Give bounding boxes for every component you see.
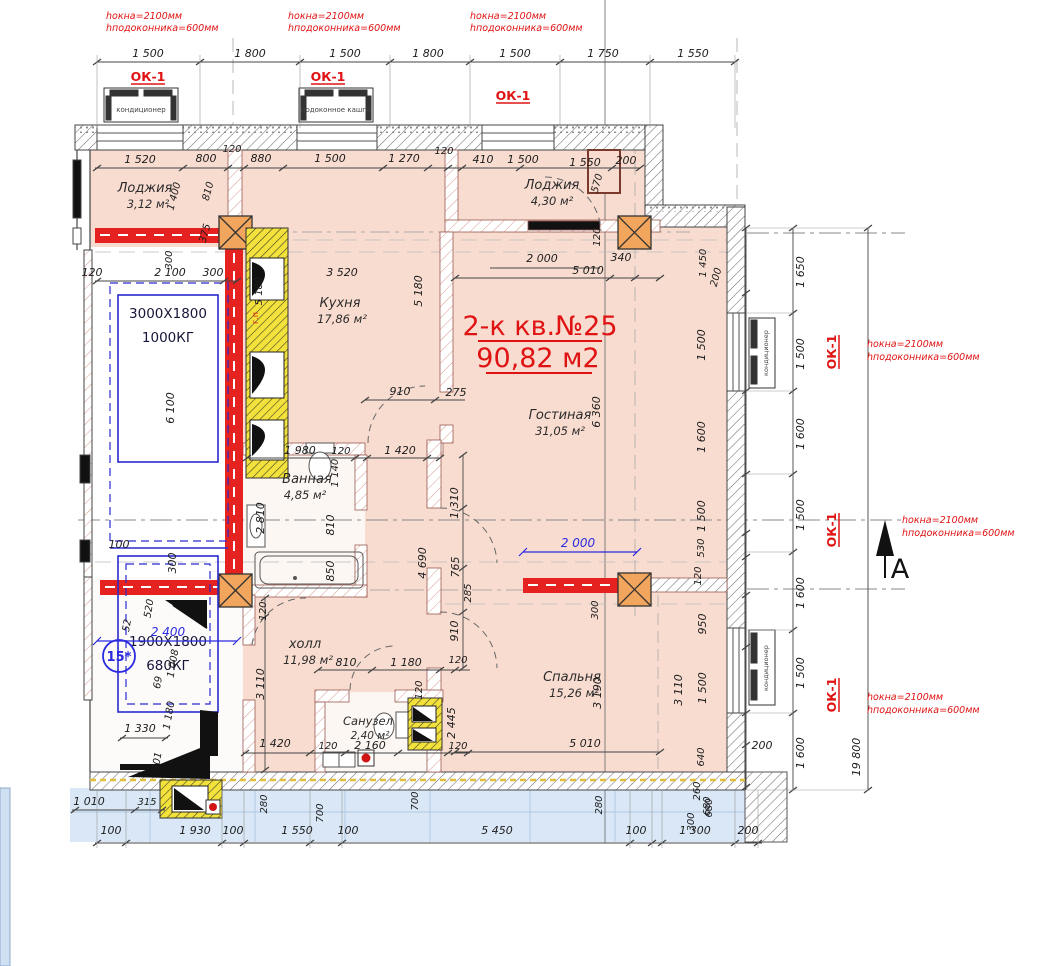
room-name: Лоджия bbox=[117, 181, 173, 196]
dim-label: 530 bbox=[696, 538, 707, 557]
dim-label: 120 bbox=[592, 227, 603, 246]
dim-label: 910 bbox=[448, 621, 461, 642]
dim-label: 1 180 bbox=[390, 656, 422, 669]
dim-label: 120 bbox=[258, 601, 269, 620]
dim-label: 880 bbox=[251, 152, 272, 165]
dim-label: 640 bbox=[696, 747, 707, 766]
dim-label: 1 930 bbox=[179, 824, 211, 837]
column bbox=[618, 216, 651, 249]
elevator-capacity: 1000КГ bbox=[142, 330, 194, 346]
room-area: 17,86 м² bbox=[317, 312, 367, 326]
window-note-line: hподоконника=600мм bbox=[470, 23, 583, 34]
dim-label: 1 800 bbox=[234, 47, 266, 60]
dim-label: 1 420 bbox=[259, 737, 291, 750]
dim-label: 120 bbox=[82, 266, 103, 279]
dim-label: 120 bbox=[434, 146, 453, 157]
dim-label: 1 500 bbox=[794, 499, 807, 531]
dim-label: 69 bbox=[152, 675, 165, 689]
dim-label: 700 bbox=[410, 791, 421, 810]
dim-label: 200 bbox=[738, 824, 759, 837]
dim-label: 910 bbox=[390, 385, 411, 398]
dim-label: 315 bbox=[137, 797, 156, 808]
dim-label: 1 450 bbox=[698, 249, 709, 278]
dim-label: 1 500 bbox=[507, 153, 539, 166]
dim-label: 6 100 bbox=[164, 392, 177, 424]
dim-label: 5 180 bbox=[412, 275, 425, 307]
planter-box: подоконное кашпо bbox=[299, 88, 373, 122]
dim-label: 1 300 bbox=[679, 824, 711, 837]
dim-label: 1 500 bbox=[132, 47, 164, 60]
dim-label: 1 310 bbox=[448, 487, 461, 519]
conditioner-label: кондиционер bbox=[762, 645, 770, 691]
dim-label: 120 bbox=[414, 680, 425, 699]
dim-label: 280 bbox=[594, 795, 605, 814]
room-area: 15,26 м² bbox=[549, 686, 599, 700]
blue-dim-label: 2 000 bbox=[561, 536, 596, 550]
dim-label: 120 bbox=[448, 655, 467, 666]
window-type: ОК-1 bbox=[131, 69, 166, 84]
dim-label: 100 bbox=[223, 824, 244, 837]
window-note-line: hподоконника=600мм bbox=[106, 23, 219, 34]
column bbox=[219, 574, 252, 607]
dim-label: 3 110 bbox=[254, 668, 267, 700]
planter-label: подоконное кашпо bbox=[301, 106, 371, 114]
dim-label: 1 650 bbox=[794, 256, 807, 288]
window-note-line: hокна=2100мм bbox=[106, 11, 182, 22]
window-note-line: hокна=2100мм bbox=[288, 11, 364, 22]
floor-plan-screenshot: 3000X1800 1000КГ 1900X1800 680КГ г.п bbox=[0, 0, 1061, 966]
dim-label: 1 750 bbox=[587, 47, 619, 60]
dim-label: 120 bbox=[693, 566, 704, 585]
room-name: Гостиная bbox=[529, 408, 592, 423]
left-corridor-strip bbox=[0, 788, 10, 966]
blue-dim-label: 2 400 bbox=[151, 625, 186, 639]
dim-label: 2 445 bbox=[445, 707, 458, 739]
room-area: 11,98 м² bbox=[283, 653, 333, 667]
dim-label: 2 000 bbox=[526, 252, 558, 265]
window-note-line: hподоконника=600мм bbox=[288, 23, 401, 34]
apartment-title: 2-к кв.№25 90,82 м2 bbox=[462, 311, 617, 374]
dim-label: 100 bbox=[626, 824, 647, 837]
window-type: ОК-1 bbox=[824, 513, 839, 548]
dim-label: 1 420 bbox=[384, 444, 416, 457]
entry-shaft bbox=[160, 780, 222, 818]
gas-stove-label: г.п bbox=[251, 312, 260, 324]
dim-label: 1 600 bbox=[695, 421, 708, 453]
dim-label: 850 bbox=[324, 561, 337, 582]
dim-label: 100 bbox=[101, 824, 122, 837]
dim-label: 120 bbox=[318, 741, 337, 752]
dim-label: 1 500 bbox=[794, 338, 807, 370]
room-name: Санузел bbox=[343, 714, 394, 728]
dim-label: 700 bbox=[315, 803, 326, 822]
dim-label: 1 520 bbox=[124, 153, 156, 166]
window-note-line: hподоконника=600мм bbox=[867, 705, 980, 716]
dim-label: 1 010 bbox=[73, 795, 105, 808]
dim-label: 1 600 bbox=[794, 737, 807, 769]
dim-label: 300 bbox=[203, 266, 224, 279]
window-type: ОК-1 bbox=[824, 678, 839, 713]
dim-label: 1 330 bbox=[124, 722, 156, 735]
window-note-line: hподоконника=600мм bbox=[902, 528, 1015, 539]
dim-label: 680 bbox=[704, 798, 715, 817]
dim-label: 340 bbox=[611, 251, 632, 264]
dim-label: 1 600 bbox=[794, 577, 807, 609]
dim-label: 410 bbox=[473, 153, 494, 166]
window-note-line: hокна=2100мм bbox=[867, 692, 943, 703]
apartment-title-line1: 2-к кв.№25 bbox=[462, 311, 617, 342]
dim-label: 5 450 bbox=[481, 824, 513, 837]
dim-label: 1 550 bbox=[677, 47, 709, 60]
dim-label: 6 360 bbox=[590, 396, 603, 428]
window-type: ОК-1 bbox=[824, 335, 839, 370]
room-name: Ванная bbox=[282, 472, 332, 487]
dim-label: 1 500 bbox=[329, 47, 361, 60]
dim-label: 810 bbox=[324, 515, 337, 536]
dim-label: 950 bbox=[696, 614, 709, 635]
conditioner-box-right-1: кондиционер bbox=[749, 318, 775, 388]
conditioner-box-right-2: кондиционер bbox=[749, 630, 775, 705]
dim-label: 2 810 bbox=[254, 502, 267, 534]
window-note-line: hокна=2100мм bbox=[470, 11, 546, 22]
room-area: 2,40 м² bbox=[351, 730, 391, 742]
dim-label: 1 500 bbox=[696, 672, 709, 704]
dim-label: 1 550 bbox=[281, 824, 313, 837]
conditioner-label: кондиционер bbox=[762, 330, 770, 376]
floor-plan-drawing: 3000X1800 1000КГ 1900X1800 680КГ г.п bbox=[0, 0, 1061, 966]
dim-label: 300 bbox=[590, 600, 601, 619]
dim-label: 100 bbox=[109, 538, 130, 551]
apartment-title-line2: 90,82 м2 bbox=[476, 343, 599, 374]
loggia2-window bbox=[528, 221, 600, 230]
conditioner-label: кондиционер bbox=[116, 106, 166, 114]
dim-label: 5 180 bbox=[254, 277, 265, 306]
dim-label: 280 bbox=[259, 794, 270, 813]
dim-label: 120 bbox=[331, 446, 350, 457]
dim-label: 1 980 bbox=[284, 444, 316, 457]
dim-label: 285 bbox=[463, 583, 474, 602]
window-type: ОК-1 bbox=[311, 69, 346, 84]
dim-label: 3 520 bbox=[326, 266, 358, 279]
column bbox=[618, 573, 651, 606]
dim-label: 1 550 bbox=[569, 156, 601, 169]
room-area: 4,30 м² bbox=[531, 194, 574, 208]
room-name: холл bbox=[288, 637, 321, 652]
room-name: Кухня bbox=[320, 296, 361, 311]
elevator-size: 3000X1800 bbox=[129, 306, 207, 322]
conditioner-box: кондиционер bbox=[104, 88, 178, 122]
dim-label: 1 500 bbox=[314, 152, 346, 165]
dim-label: 800 bbox=[196, 152, 217, 165]
dim-label: 1 500 bbox=[695, 500, 708, 532]
dim-label: 5 010 bbox=[569, 737, 601, 750]
dim-label: 1 500 bbox=[499, 47, 531, 60]
dim-label: 2 100 bbox=[154, 266, 186, 279]
dim-label: 100 bbox=[338, 824, 359, 837]
dim-label: 1 500 bbox=[695, 329, 708, 361]
dim-label: 1 500 bbox=[794, 657, 807, 689]
dim-label: 4 690 bbox=[416, 547, 429, 579]
dim-label: 52 bbox=[121, 618, 134, 632]
window-note-line: hподоконника=600мм bbox=[867, 352, 980, 363]
room-area: 31,05 м² bbox=[535, 424, 585, 438]
window-note-line: hокна=2100мм bbox=[867, 339, 943, 350]
room-name: Лоджия bbox=[524, 178, 580, 193]
window-type: ОК-1 bbox=[496, 88, 531, 103]
axis-marker-label: 15* bbox=[107, 650, 132, 665]
dim-label: 1 270 bbox=[388, 152, 420, 165]
window-note-line: hокна=2100мм bbox=[902, 515, 978, 526]
dim-label-overall: 19 800 bbox=[850, 738, 863, 777]
kitchen-counter: г.п bbox=[246, 228, 288, 478]
section-marker-label: A bbox=[891, 554, 910, 585]
dim-label: 810 bbox=[336, 656, 357, 669]
dim-label: 200 bbox=[752, 739, 773, 752]
room-name: Спальня bbox=[543, 670, 601, 685]
dim-label: 120 bbox=[448, 741, 467, 752]
dim-label: 275 bbox=[446, 386, 467, 399]
dim-label: 5 010 bbox=[572, 264, 604, 277]
top-windows bbox=[97, 125, 554, 150]
dim-label: 1 600 bbox=[794, 418, 807, 450]
dim-label: 200 bbox=[616, 154, 637, 167]
dim-label: 300 bbox=[166, 553, 179, 574]
room-area: 4,85 м² bbox=[284, 488, 327, 502]
dim-label: 765 bbox=[449, 557, 462, 578]
room-area: 3,12 м² bbox=[127, 197, 170, 211]
dim-label: 120 bbox=[222, 144, 241, 155]
dim-label: 3 110 bbox=[672, 674, 685, 706]
dim-label: 260 bbox=[692, 781, 703, 800]
dim-label: 1 800 bbox=[412, 47, 444, 60]
